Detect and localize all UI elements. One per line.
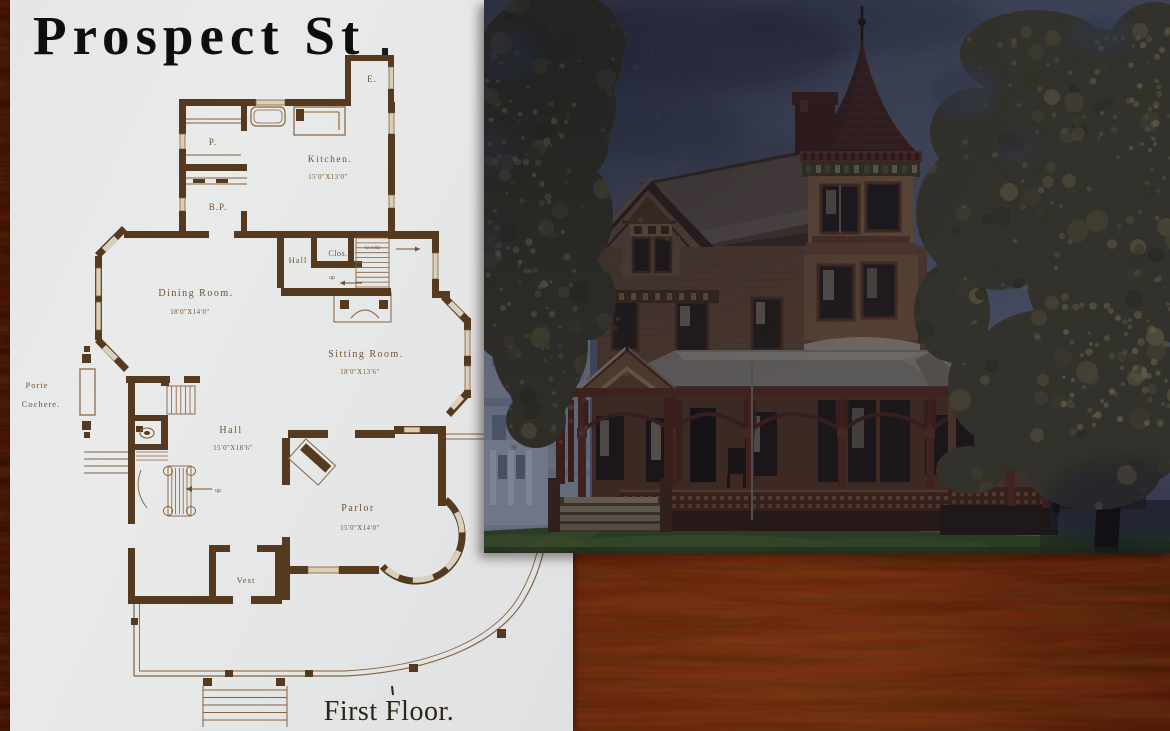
- svg-text:P.: P.: [209, 137, 217, 147]
- svg-text:Kitchen.: Kitchen.: [308, 155, 352, 165]
- svg-text:First Floor.: First Floor.: [324, 696, 454, 727]
- svg-text:18′0″X14′0″: 18′0″X14′0″: [170, 309, 209, 316]
- svg-text:up: up: [329, 275, 335, 281]
- svg-text:15′0″X18′6″: 15′0″X18′6″: [213, 445, 252, 452]
- svg-text:Hall: Hall: [289, 255, 308, 265]
- svg-text:up: up: [215, 488, 221, 494]
- svg-text:Cochere.: Cochere.: [22, 399, 60, 409]
- svg-text:18′0″X13′6″: 18′0″X13′6″: [340, 369, 379, 376]
- svg-text:Dining Room.: Dining Room.: [158, 288, 233, 299]
- svg-text:E.: E.: [367, 74, 377, 84]
- svg-text:Porte: Porte: [26, 380, 49, 390]
- svg-text:15′0″X13′0″: 15′0″X13′0″: [308, 174, 347, 181]
- svg-text:B.P.: B.P.: [209, 202, 228, 212]
- svg-text:15′0″X14′0″: 15′0″X14′0″: [340, 525, 379, 532]
- svg-text:Parlor: Parlor: [341, 503, 374, 514]
- svg-text:Clos.: Clos.: [328, 249, 347, 258]
- svg-text:Hall: Hall: [219, 425, 242, 436]
- svg-text:to cellar: to cellar: [365, 245, 381, 250]
- svg-text:Sitting Room.: Sitting Room.: [328, 349, 404, 360]
- svg-text:Vest: Vest: [237, 575, 256, 585]
